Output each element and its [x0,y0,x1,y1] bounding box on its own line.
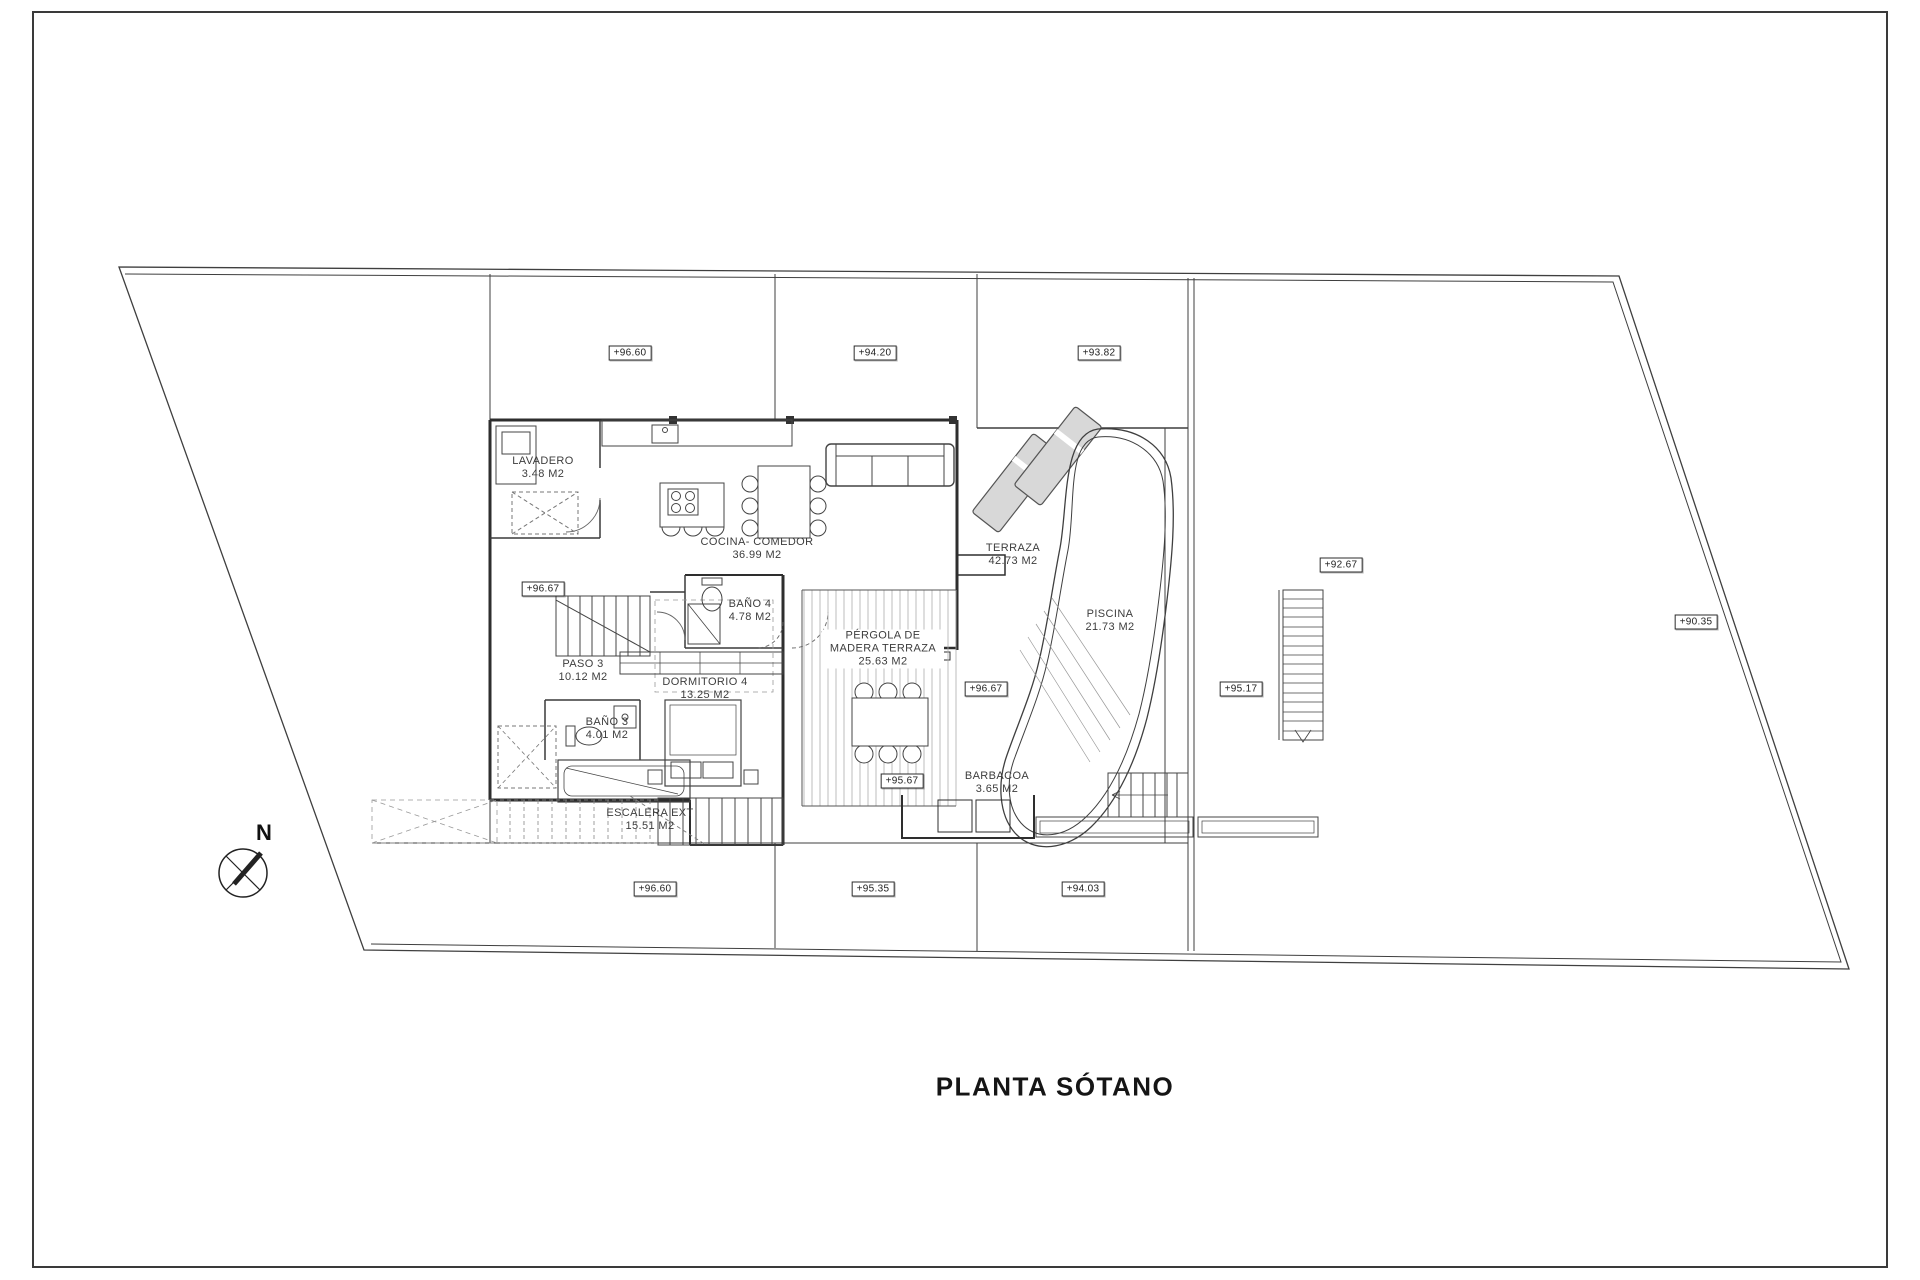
elevation-badge: +90.35 [1675,615,1718,630]
elevation-badge: +95.35 [852,882,895,897]
elevation-badge: +95.17 [1220,682,1263,697]
room-label-escalera: ESCALERA EXT15.51 M2 [606,807,693,833]
dining-table [742,466,826,538]
kitchen-island [660,483,724,536]
room-label-bano3: BAÑO 34.01 M2 [586,716,629,742]
planters [1036,817,1318,837]
page-title: PLANTA SÓTANO [936,1072,1175,1103]
elevation-badge: +94.20 [854,346,897,361]
wardrobe [620,652,783,674]
room-label-pergola: PÉRGOLA DE MADERA TERRAZA25.63 M2 [822,630,944,669]
elevation-badge: +92.67 [1320,558,1363,573]
elevation-badge: +96.67 [965,682,1008,697]
barbecue-steps [1108,773,1188,817]
sofa [826,444,954,486]
room-label-piscina: PISCINA21.73 M2 [1085,608,1134,634]
room-label-terraza: TERRAZA42.73 M2 [986,542,1040,568]
sun-loungers [972,406,1102,533]
room-label-cocina: COCINA- COMEDOR36.99 M2 [701,536,814,562]
elevation-badge: +94.03 [1062,882,1105,897]
north-label: N [256,820,272,846]
pergola-table [852,683,928,763]
right-stair [1279,590,1323,742]
drawing-sheet: LAVADERO3.48 M2 COCINA- COMEDOR36.99 M2 … [0,0,1920,1280]
elevation-badge: +95.67 [881,774,924,789]
room-label-barbacoa: BARBACOA3.65 M2 [965,770,1029,796]
room-label-dormitorio4: DORMITORIO 413.25 M2 [662,676,747,702]
bed [648,700,758,786]
elevation-badge: +93.82 [1078,346,1121,361]
exterior-stair [372,796,783,845]
elevation-badge: +96.60 [634,882,677,897]
room-label-lavadero: LAVADERO3.48 M2 [512,455,573,481]
kitchen-counter [602,420,792,446]
elevation-badge: +96.60 [609,346,652,361]
room-label-paso3: PASO 310.12 M2 [558,658,607,684]
north-arrow-icon [219,849,267,897]
site-boundary [119,267,1849,969]
elevation-badge: +96.67 [522,582,565,597]
bathroom4-fixtures [688,578,722,644]
room-label-bano4: BAÑO 44.78 M2 [729,598,772,624]
